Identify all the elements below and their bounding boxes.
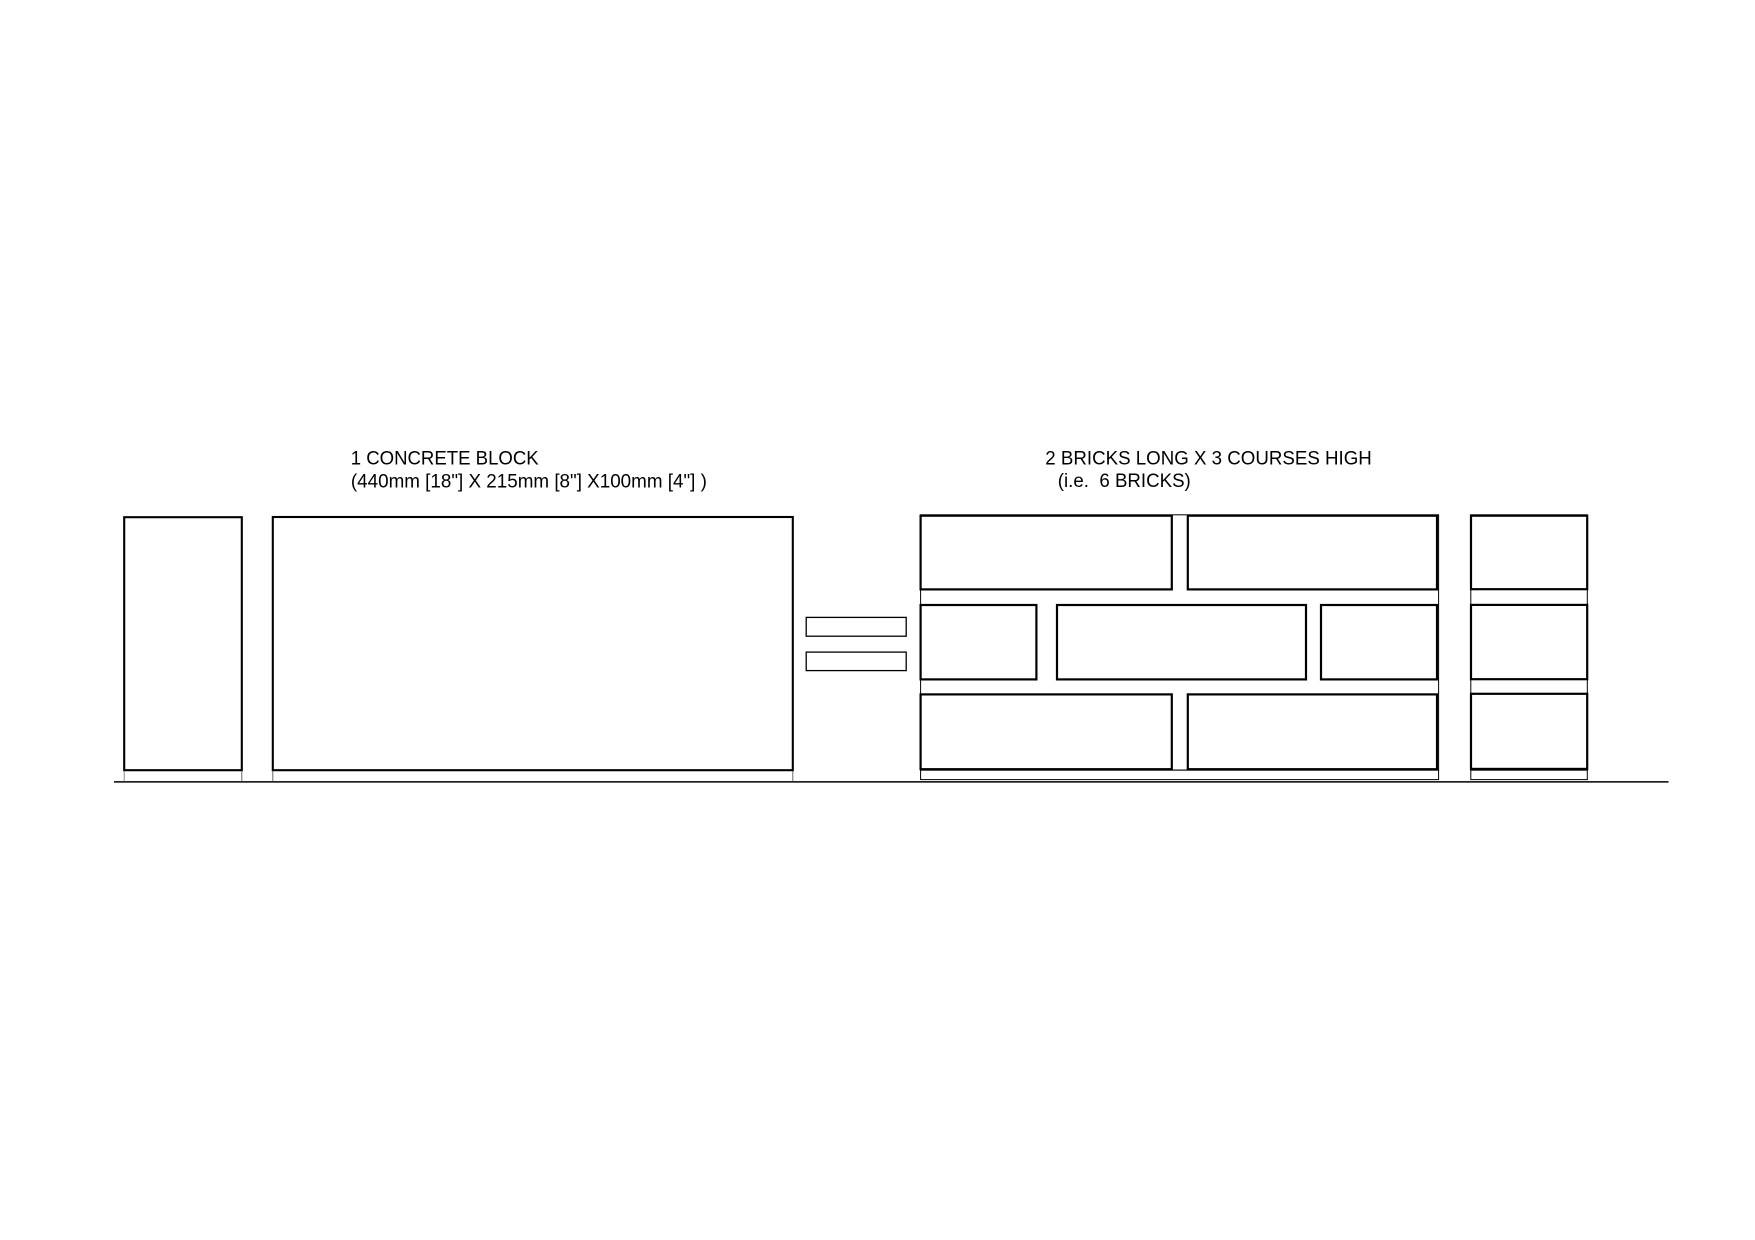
- svg-text:2 BRICKS LONG X 3 COURSES HIGH: 2 BRICKS LONG X 3 COURSES HIGH: [1045, 448, 1372, 469]
- svg-text:1 CONCRETE BLOCK: 1 CONCRETE BLOCK: [351, 448, 539, 469]
- svg-text:(i.e. 6 BRICKS): (i.e. 6 BRICKS): [1058, 471, 1191, 492]
- svg-text:(440mm [18"] X 215mm [8"] X100: (440mm [18"] X 215mm [8"] X100mm [4"] ): [351, 472, 707, 493]
